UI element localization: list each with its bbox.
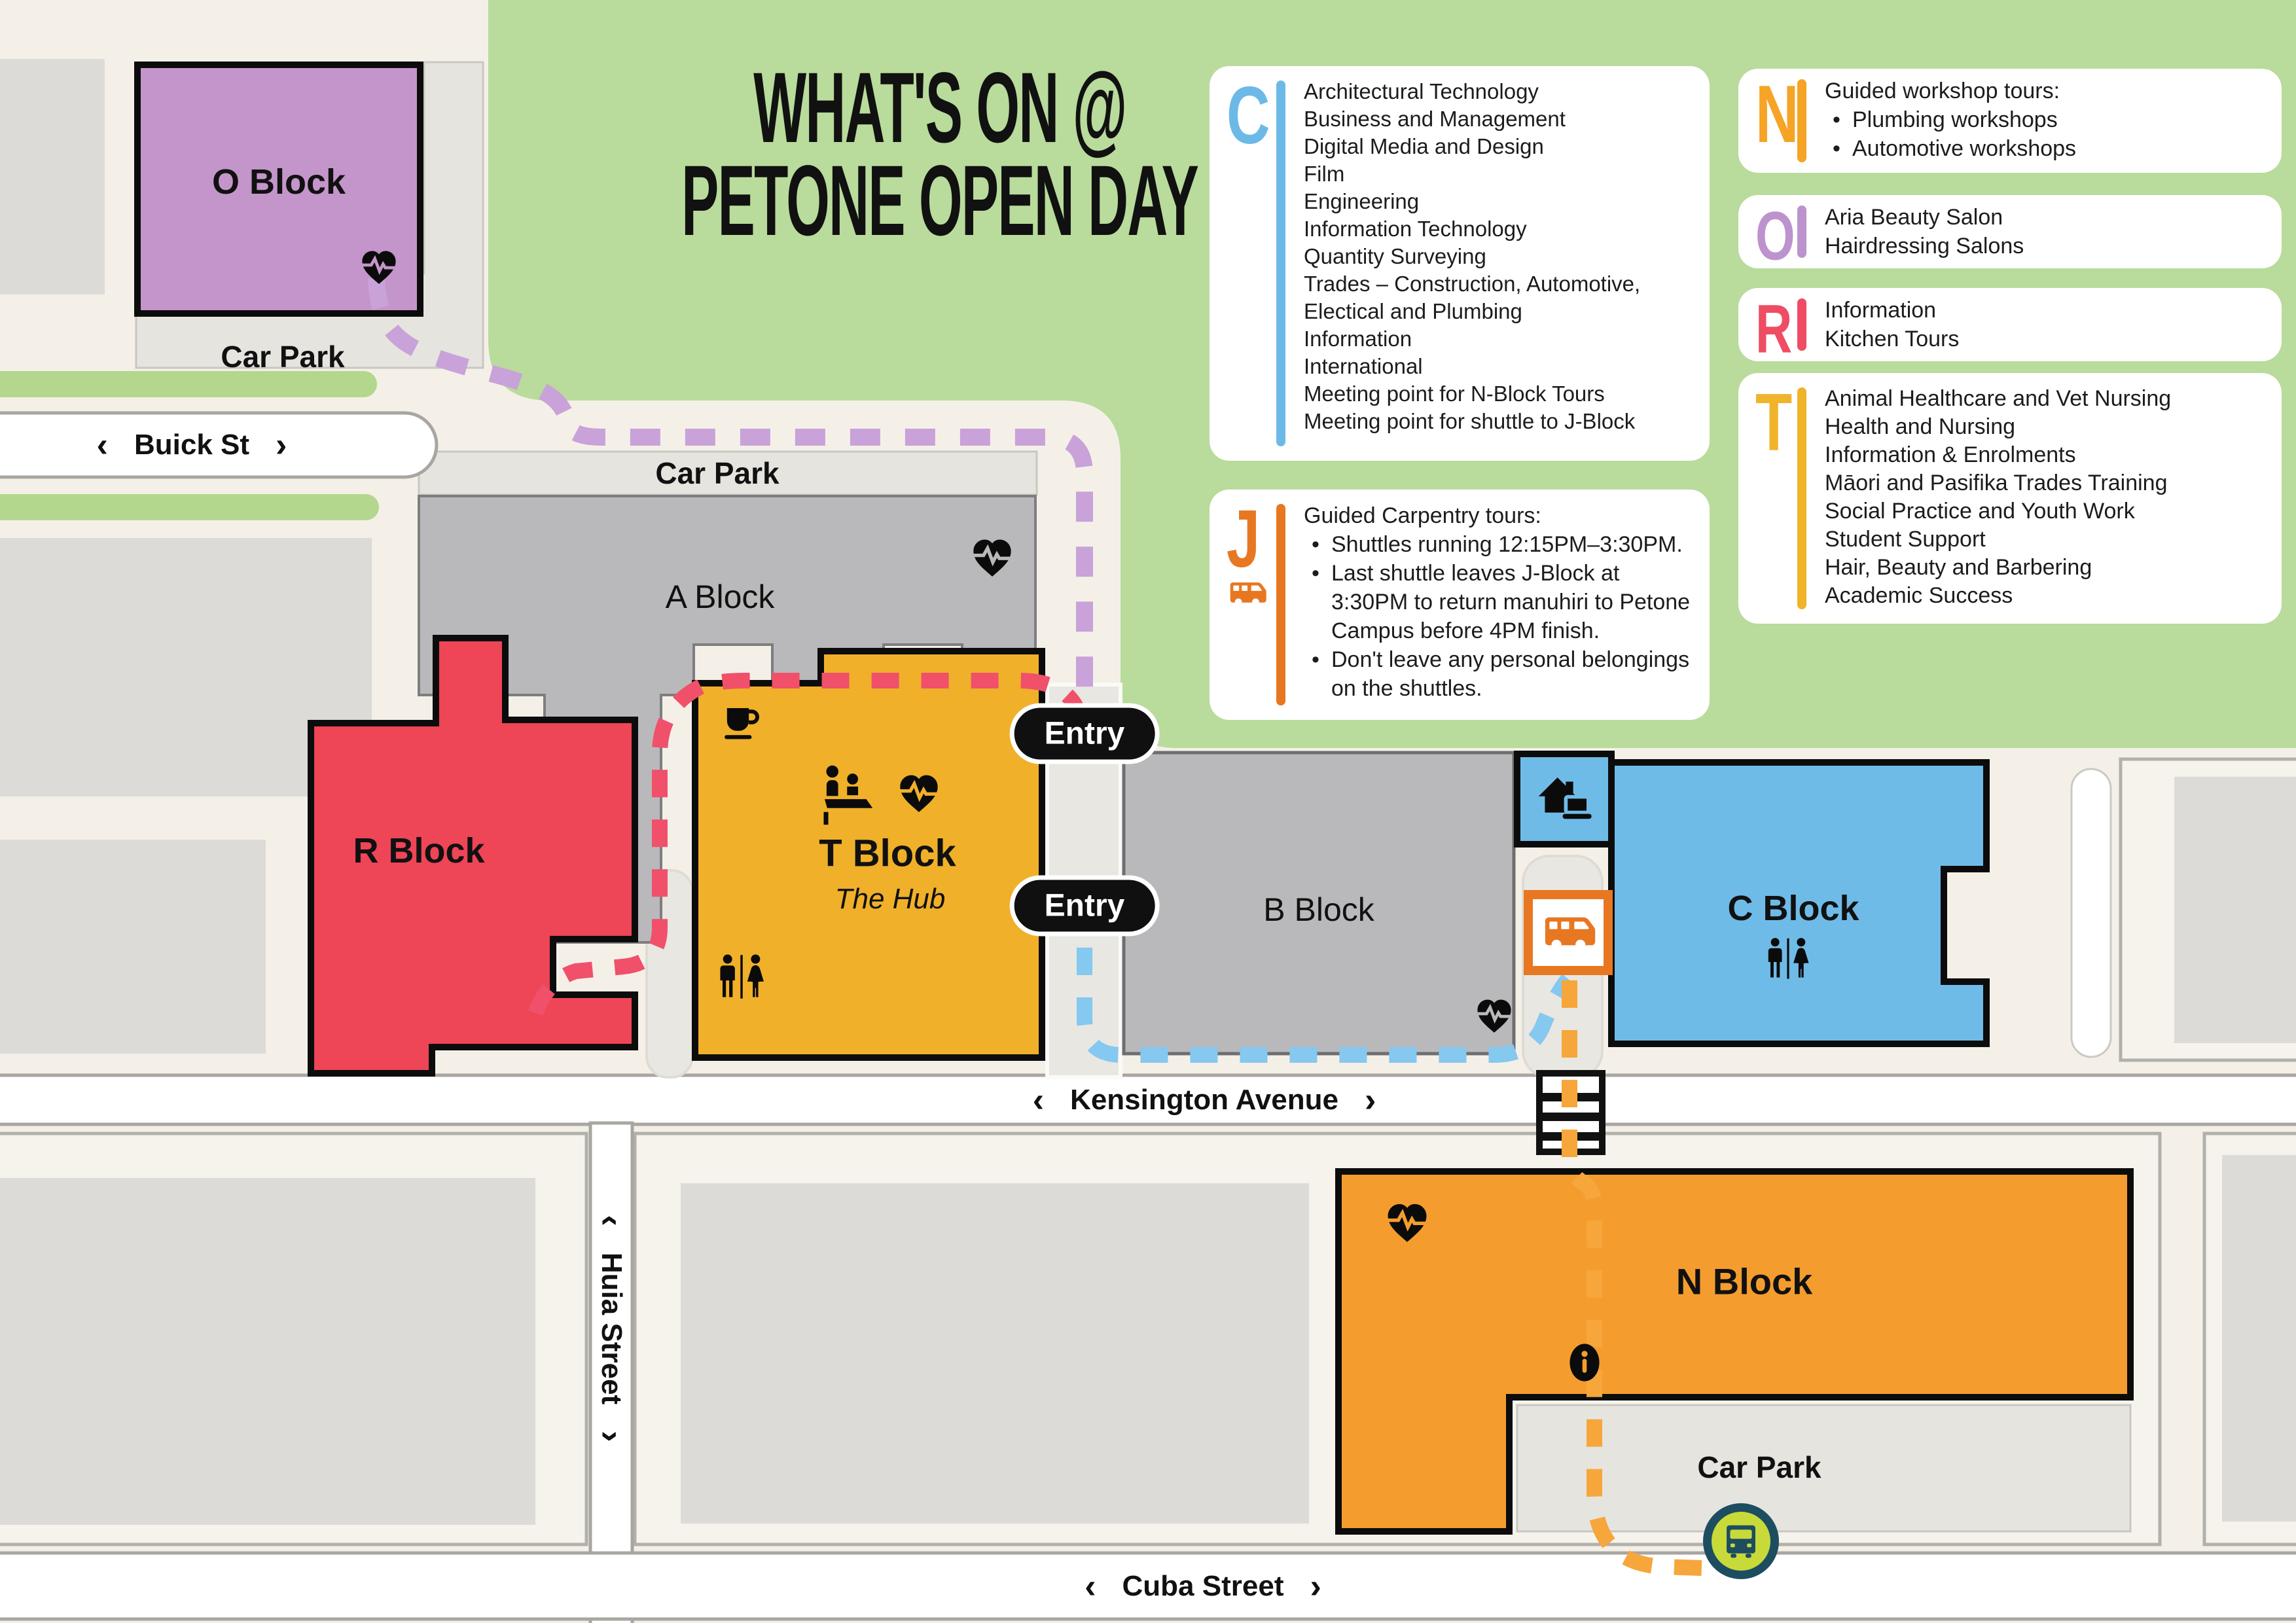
heart-pulse-icon: [1473, 994, 1516, 1037]
building: [2174, 777, 2296, 1043]
reception-desk-icon: [816, 761, 886, 830]
street-name-buick: Buick St: [134, 429, 249, 461]
legend-text-o: Aria Beauty SalonHairdressing Salons: [1825, 203, 2265, 260]
block-t-subtitle: The Hub: [835, 883, 946, 916]
building: [0, 59, 105, 294]
legend-line: Information: [1304, 325, 1693, 353]
street-label-cuba: ‹ Cuba Street ›: [1085, 1569, 1321, 1603]
street-label-buick: ‹ Buick St ›: [97, 428, 287, 462]
legend-letter-j: J: [1227, 501, 1276, 579]
legend-line: Meeting point for N-Block Tours: [1304, 380, 1693, 408]
legend-letter-col: N: [1755, 77, 1797, 165]
legend-line: Information: [1825, 296, 2265, 325]
building: [0, 1178, 535, 1525]
legend-line: Health and Nursing: [1825, 413, 2265, 441]
legend-heading-n: Guided workshop tours:: [1825, 77, 2265, 105]
legend-line: Hair, Beauty and Barbering: [1825, 554, 2265, 582]
grass-strip: [0, 494, 379, 520]
legend-heading-j: Guided Carpentry tours:: [1304, 501, 1693, 530]
legend-letter-r: R: [1755, 296, 1797, 361]
legend-letter-t: T: [1755, 385, 1797, 462]
legend-line: Shuttles running 12:15PM–3:30PM.: [1304, 530, 1693, 559]
legend-line: Student Support: [1825, 526, 2265, 554]
legend-line: Film: [1304, 160, 1693, 188]
street-name-kensington: Kensington Avenue: [1070, 1084, 1338, 1116]
legend-letter-o: O: [1755, 203, 1797, 268]
toilets-icon: [1763, 935, 1814, 986]
car-park-a-label: Car Park: [655, 455, 779, 491]
legend-line: Academic Success: [1825, 582, 2265, 610]
block-c-label: C Block: [1727, 888, 1859, 929]
legend-panel-t: T Animal Healthcare and Vet NursingHealt…: [1738, 373, 2282, 624]
street-name-cuba: Cuba Street: [1122, 1570, 1284, 1603]
legend-bullets-j: Shuttles running 12:15PM–3:30PM.Last shu…: [1304, 530, 1693, 703]
bus-stop-icon: [1721, 1521, 1761, 1561]
legend-line: Business and Management: [1304, 105, 1693, 133]
block-n-label: N Block: [1676, 1260, 1813, 1303]
legend-letter-col: R: [1755, 296, 1797, 353]
page-title-line1: WHAT'S ON @: [753, 58, 1126, 158]
legend-line: Māori and Pasifika Trades Training: [1825, 469, 2265, 497]
block-b-label: B Block: [1263, 891, 1374, 929]
legend-line: Plumbing workshops: [1825, 105, 2265, 134]
street-label-huia: ‹ Huia Street ›: [594, 1215, 628, 1442]
chevron-right-icon: ›: [594, 1431, 628, 1442]
chevron-right-icon: ›: [1365, 1083, 1376, 1117]
driveway: [2072, 769, 2111, 1057]
legend-panel-n: N Guided workshop tours: Plumbing worksh…: [1738, 69, 2282, 173]
entry-badge-south: Entry: [1014, 880, 1155, 932]
legend-line: Architectural Technology: [1304, 78, 1693, 105]
page-title: WHAT'S ON @ PETONE OPEN DAY: [613, 58, 1267, 217]
legend-letter-n: N: [1755, 77, 1797, 154]
legend-line: Information Technology: [1304, 215, 1693, 243]
legend-line: Animal Healthcare and Vet Nursing: [1825, 385, 2265, 413]
legend-line: Kitchen Tours: [1825, 325, 2265, 353]
legend-panel-j: J Guided Carpentry tours: Shuttles runni…: [1210, 490, 1710, 720]
legend-line: Last shuttle leaves J-Block at 3:30PM to…: [1304, 559, 1693, 645]
legend-panel-r: R InformationKitchen Tours: [1738, 288, 2282, 361]
legend-line: Engineering: [1304, 188, 1693, 215]
grass-strip: [0, 371, 377, 397]
legend-letter-col: J: [1227, 501, 1276, 708]
legend-panel-o: O Aria Beauty SalonHairdressing Salons: [1738, 195, 2282, 268]
chevron-left-icon: ‹: [1033, 1083, 1044, 1117]
legend-text-c: Architectural TechnologyBusiness and Man…: [1304, 78, 1693, 449]
info-icon: [1563, 1341, 1606, 1384]
heart-pulse-icon: [968, 533, 1016, 582]
street-name-huia: Huia Street: [595, 1253, 628, 1404]
car-park-o-label: Car Park: [221, 339, 344, 374]
car-park-n-area: [1517, 1405, 2130, 1531]
chevron-right-icon: ›: [1310, 1569, 1321, 1603]
legend-line: Meeting point for shuttle to J-Block: [1304, 408, 1693, 435]
legend-letter-col: O: [1755, 203, 1797, 260]
block-o-label: O Block: [212, 162, 346, 202]
legend-text-t: Animal Healthcare and Vet NursingHealth …: [1825, 385, 2265, 612]
legend-letter-c: C: [1227, 78, 1276, 155]
legend-line: International: [1304, 353, 1693, 380]
legend-letter-col: T: [1755, 385, 1797, 612]
block-a-label: A Block: [666, 578, 775, 616]
legend-text-r: InformationKitchen Tours: [1825, 296, 2265, 353]
legend-line: Automotive workshops: [1825, 134, 2265, 163]
entry-badge-north: Entry: [1014, 708, 1155, 760]
heart-pulse-icon: [357, 245, 401, 289]
legend-text-n: Guided workshop tours: Plumbing workshop…: [1825, 77, 2265, 165]
legend-line: Social Practice and Youth Work: [1825, 497, 2265, 526]
chevron-left-icon: ‹: [1085, 1569, 1096, 1603]
legend-line: Trades – Construction, Automotive,: [1304, 270, 1693, 298]
legend-line: Quantity Surveying: [1304, 243, 1693, 270]
legend-bar-c: [1276, 80, 1285, 446]
legend-bar-t: [1797, 387, 1806, 609]
legend-bullets-n: Plumbing workshopsAutomotive workshops: [1825, 105, 2265, 163]
chevron-left-icon: ‹: [97, 428, 108, 462]
legend-text-j: Guided Carpentry tours: Shuttles running…: [1304, 501, 1693, 708]
legend-bar-r: [1797, 298, 1806, 351]
page-title-line2: PETONE OPEN DAY: [681, 151, 1198, 251]
block-t-label: T Block: [819, 832, 956, 876]
legend-bar-j: [1276, 504, 1285, 705]
building: [681, 1183, 1309, 1524]
coffee-icon: [717, 700, 766, 748]
legend-line: Digital Media and Design: [1304, 133, 1693, 160]
building: [0, 840, 266, 1054]
legend-line: Information & Enrolments: [1825, 441, 2265, 469]
toilets-icon: [714, 952, 769, 1007]
petone-open-day-map: WHAT'S ON @ PETONE OPEN DAY C Architectu…: [0, 0, 2296, 1623]
chevron-left-icon: ‹: [594, 1215, 628, 1226]
legend-line: Aria Beauty Salon: [1825, 203, 2265, 232]
building: [2222, 1155, 2296, 1522]
shuttle-bus-stop-icon: [1540, 904, 1596, 960]
block-r-label: R Block: [353, 830, 484, 871]
house-laptop-icon: [1533, 767, 1596, 830]
legend-letter-col: C: [1227, 78, 1276, 449]
heart-pulse-icon: [895, 769, 943, 817]
legend-line: Hairdressing Salons: [1825, 232, 2265, 260]
legend-panel-c: C Architectural TechnologyBusiness and M…: [1210, 66, 1710, 461]
legend-bar-o: [1797, 205, 1806, 258]
legend-line: Don't leave any personal belongings on t…: [1304, 645, 1693, 703]
car-park-n-label: Car Park: [1697, 1450, 1821, 1485]
legend-bar-n: [1797, 79, 1806, 162]
street-label-kensington: ‹ Kensington Avenue ›: [1033, 1083, 1376, 1117]
legend-line: Electical and Plumbing: [1304, 298, 1693, 325]
chevron-right-icon: ›: [276, 428, 287, 462]
heart-pulse-icon: [1382, 1198, 1432, 1247]
